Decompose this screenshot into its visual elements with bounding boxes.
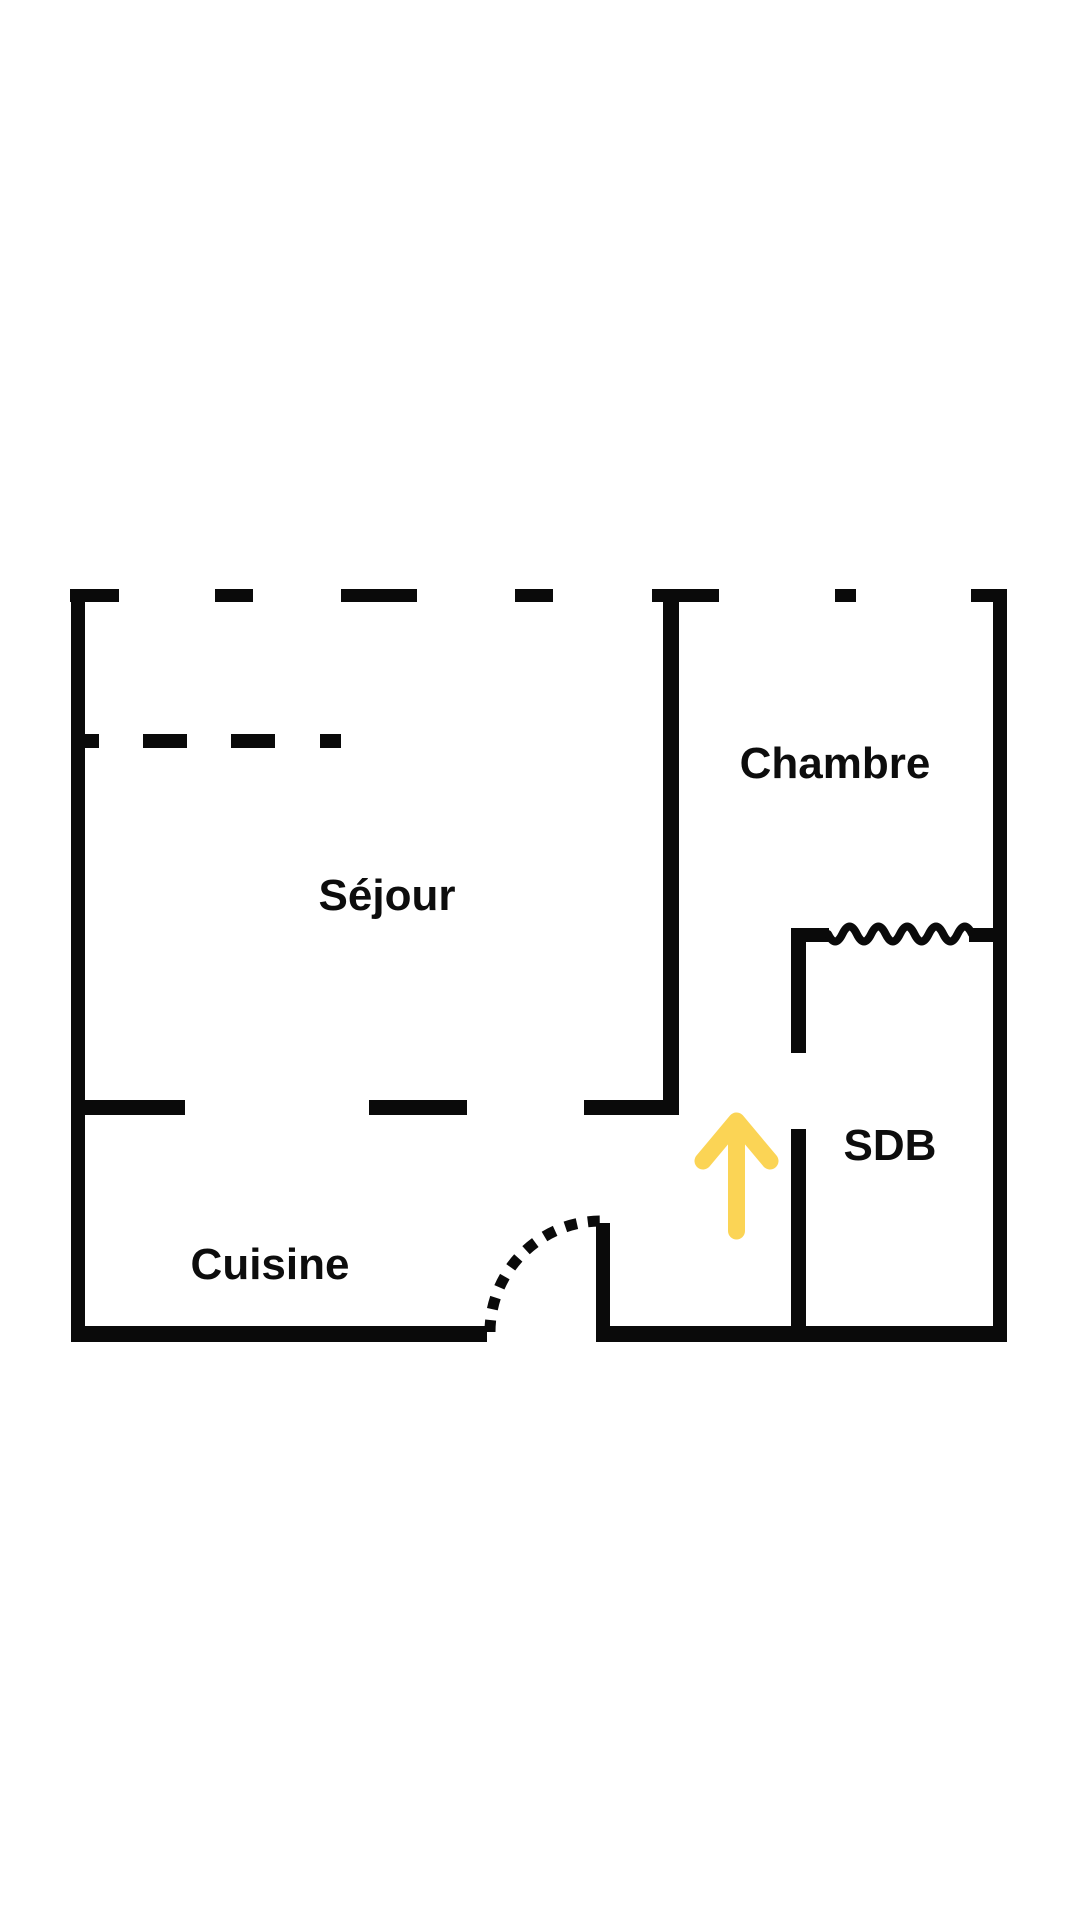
room-label-cuisine: Cuisine	[191, 1240, 350, 1290]
floor-plan-canvas: Séjour Chambre SDB Cuisine	[0, 0, 1080, 1920]
entry-door-jamb	[596, 1223, 610, 1342]
partition-sejour-cuisine-b	[369, 1100, 467, 1115]
room-label-sdb: SDB	[844, 1121, 937, 1171]
partition-sejour-cuisine-c	[584, 1100, 679, 1115]
interior-dash-1	[143, 734, 187, 748]
window-wave-icon	[828, 927, 972, 942]
sdb-wall-left-upper	[791, 928, 806, 1053]
wall-top-dash-4	[835, 589, 856, 602]
exterior-wall-left	[71, 589, 85, 1342]
up-arrow-icon	[703, 1121, 770, 1231]
partition-sejour-cuisine-a	[71, 1100, 185, 1115]
room-label-chambre: Chambre	[740, 739, 931, 789]
sdb-wall-top-stub-left	[791, 928, 829, 942]
wall-top-dash-1	[215, 589, 253, 602]
interior-dash-2	[231, 734, 275, 748]
exterior-wall-bottom-left	[71, 1326, 487, 1342]
interior-dash-nub	[84, 734, 99, 748]
room-label-sejour: Séjour	[319, 871, 456, 921]
partition-sejour-chambre	[663, 589, 679, 1115]
plan-overlay-graphics	[0, 0, 1080, 1920]
door-swing-arc	[490, 1221, 601, 1332]
sdb-wall-left-lower	[791, 1129, 806, 1342]
sdb-wall-top-stub-right	[969, 928, 993, 942]
interior-dash-3	[320, 734, 341, 748]
exterior-wall-right	[993, 589, 1007, 1342]
wall-top-dash-3	[515, 589, 553, 602]
wall-top-dash-2	[341, 589, 417, 602]
